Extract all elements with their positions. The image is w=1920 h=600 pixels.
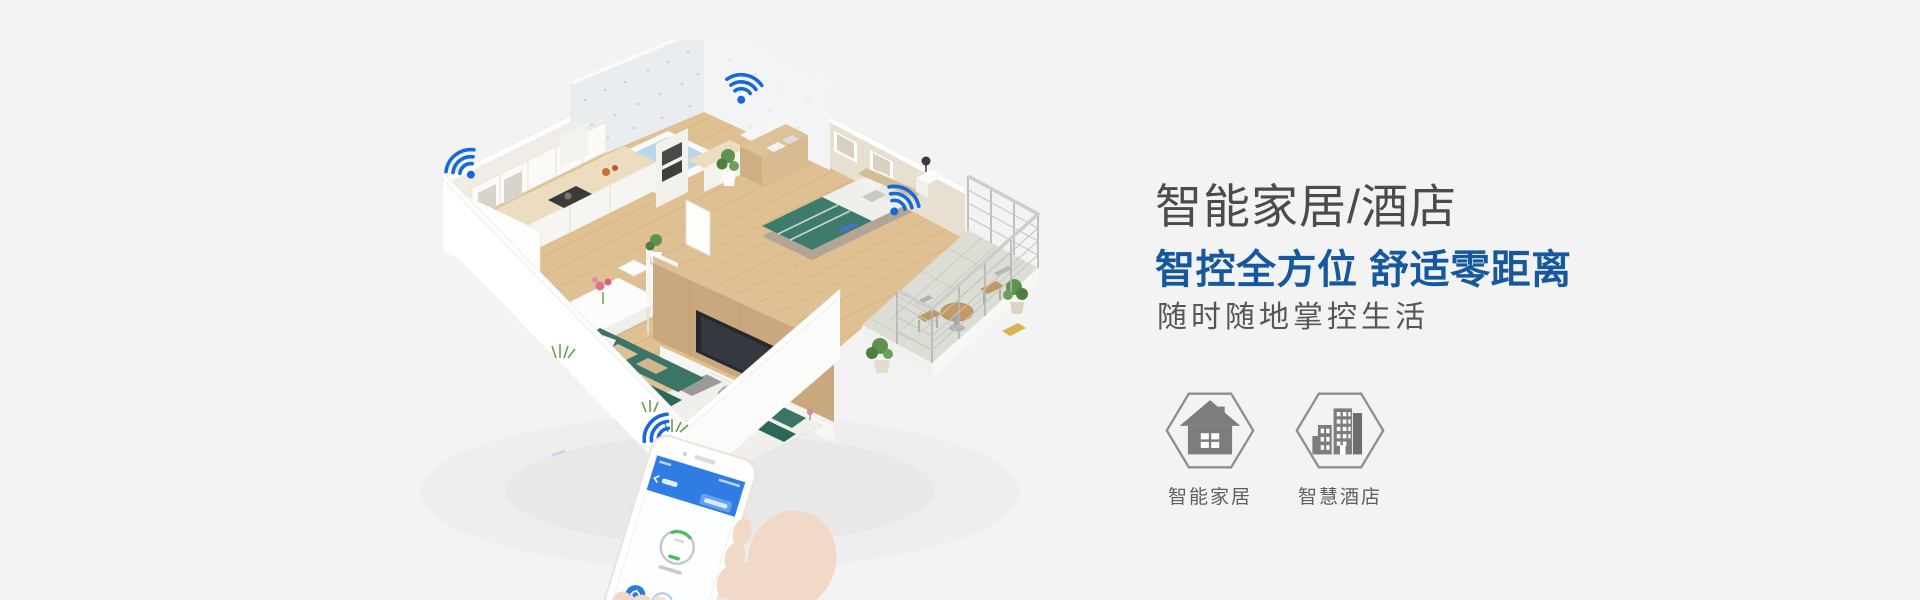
hero-tagline: 随时随地掌控生活: [1157, 292, 1429, 336]
buildings-icon: [1294, 388, 1386, 473]
feature-item-smart-hotel[interactable]: 智慧酒店: [1290, 388, 1390, 509]
hand-holding-phone-illustration: [560, 410, 880, 600]
hero-subtitle: 智控全方位 舒适零距离: [1155, 237, 1572, 295]
feature-list: 智能家居: [1160, 388, 1390, 509]
feature-label: 智能家居: [1168, 482, 1252, 509]
wifi-signal-icon: [712, 52, 777, 117]
page-title: 智能家居/酒店: [1155, 168, 1457, 237]
feature-item-smart-home[interactable]: 智能家居: [1160, 388, 1260, 509]
hero-banner: 智能家居/酒店 智控全方位 舒适零距离 随时随地掌控生活 智能家居: [0, 0, 1920, 600]
house-icon: [1164, 388, 1256, 473]
feature-label: 智慧酒店: [1298, 482, 1382, 509]
